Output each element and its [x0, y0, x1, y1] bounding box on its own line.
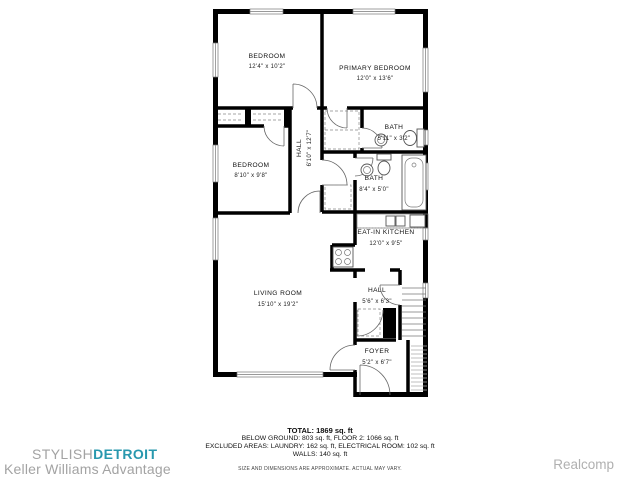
chimney-chase	[383, 308, 396, 338]
toilet-tank-icon	[377, 154, 391, 160]
closet-end-stub	[284, 108, 290, 126]
realcomp-watermark: Realcomp	[553, 457, 614, 472]
floor-plan: BEDROOM 12'4" x 10'2" PRIMARY BEDROOM 12…	[0, 0, 640, 480]
room-label-kitchen: EAT-IN KITCHEN	[357, 229, 414, 236]
room-dims-kitchen: 12'0" x 9'5"	[369, 241, 402, 247]
room-label-bedroom2: BEDROOM	[233, 162, 270, 169]
room-dims-bath1: 5'11" x 3'2"	[378, 136, 411, 142]
room-dims-primary-bedroom: 12'0" x 13'6"	[357, 76, 394, 82]
room-dims-hall-upper: 6'10" x 12'7"	[307, 130, 313, 167]
kitchen-sink-icon	[386, 216, 395, 226]
room-label-bath1: BATH	[385, 124, 404, 131]
brand-subtitle: Keller Williams Advantage	[4, 462, 171, 477]
room-label-primary-bedroom: PRIMARY BEDROOM	[339, 65, 411, 72]
brand-detroit: DETROIT	[93, 446, 157, 462]
room-dims-bedroom2: 8'10" x 9'8"	[234, 173, 267, 179]
stove-icon	[333, 247, 353, 267]
closet-divider-stub	[245, 108, 251, 126]
kitchen-sink-icon	[396, 216, 405, 226]
area-line-1: BELOW GROUND: 803 sq. ft, FLOOR 2: 1066 …	[0, 435, 640, 443]
room-label-living-room: LIVING ROOM	[254, 290, 302, 297]
room-label-hall-lower: HALL	[368, 287, 386, 294]
room-dims-bath2: 8'4" x 5'0"	[359, 187, 389, 193]
room-dims-bedroom1: 12'4" x 10'2"	[249, 64, 286, 70]
room-dims-living-room: 15'10" x 19'2"	[258, 302, 298, 308]
room-dims-hall-lower: 5'6" x 6'3"	[362, 299, 392, 305]
room-dims-foyer: 5'2" x 6'7"	[362, 360, 392, 366]
room-label-bedroom1: BEDROOM	[249, 53, 286, 60]
brand-wordmark: STYLISHDETROIT	[4, 447, 171, 462]
bath2-fixtures	[361, 154, 426, 210]
toilet-tank-icon	[417, 129, 424, 147]
room-label-foyer: FOYER	[365, 348, 390, 355]
staircase	[402, 288, 426, 336]
room-label-hall-upper: HALL	[296, 139, 303, 157]
brand-logo: STYLISHDETROIT Keller Williams Advantage	[4, 447, 171, 477]
room-label-bath2: BATH	[365, 175, 384, 182]
brand-stylish: STYLISH	[32, 446, 93, 462]
dishwasher-icon	[410, 215, 425, 227]
total-area: TOTAL: 1869 sq. ft	[0, 427, 640, 435]
toilet-icon	[378, 161, 390, 175]
